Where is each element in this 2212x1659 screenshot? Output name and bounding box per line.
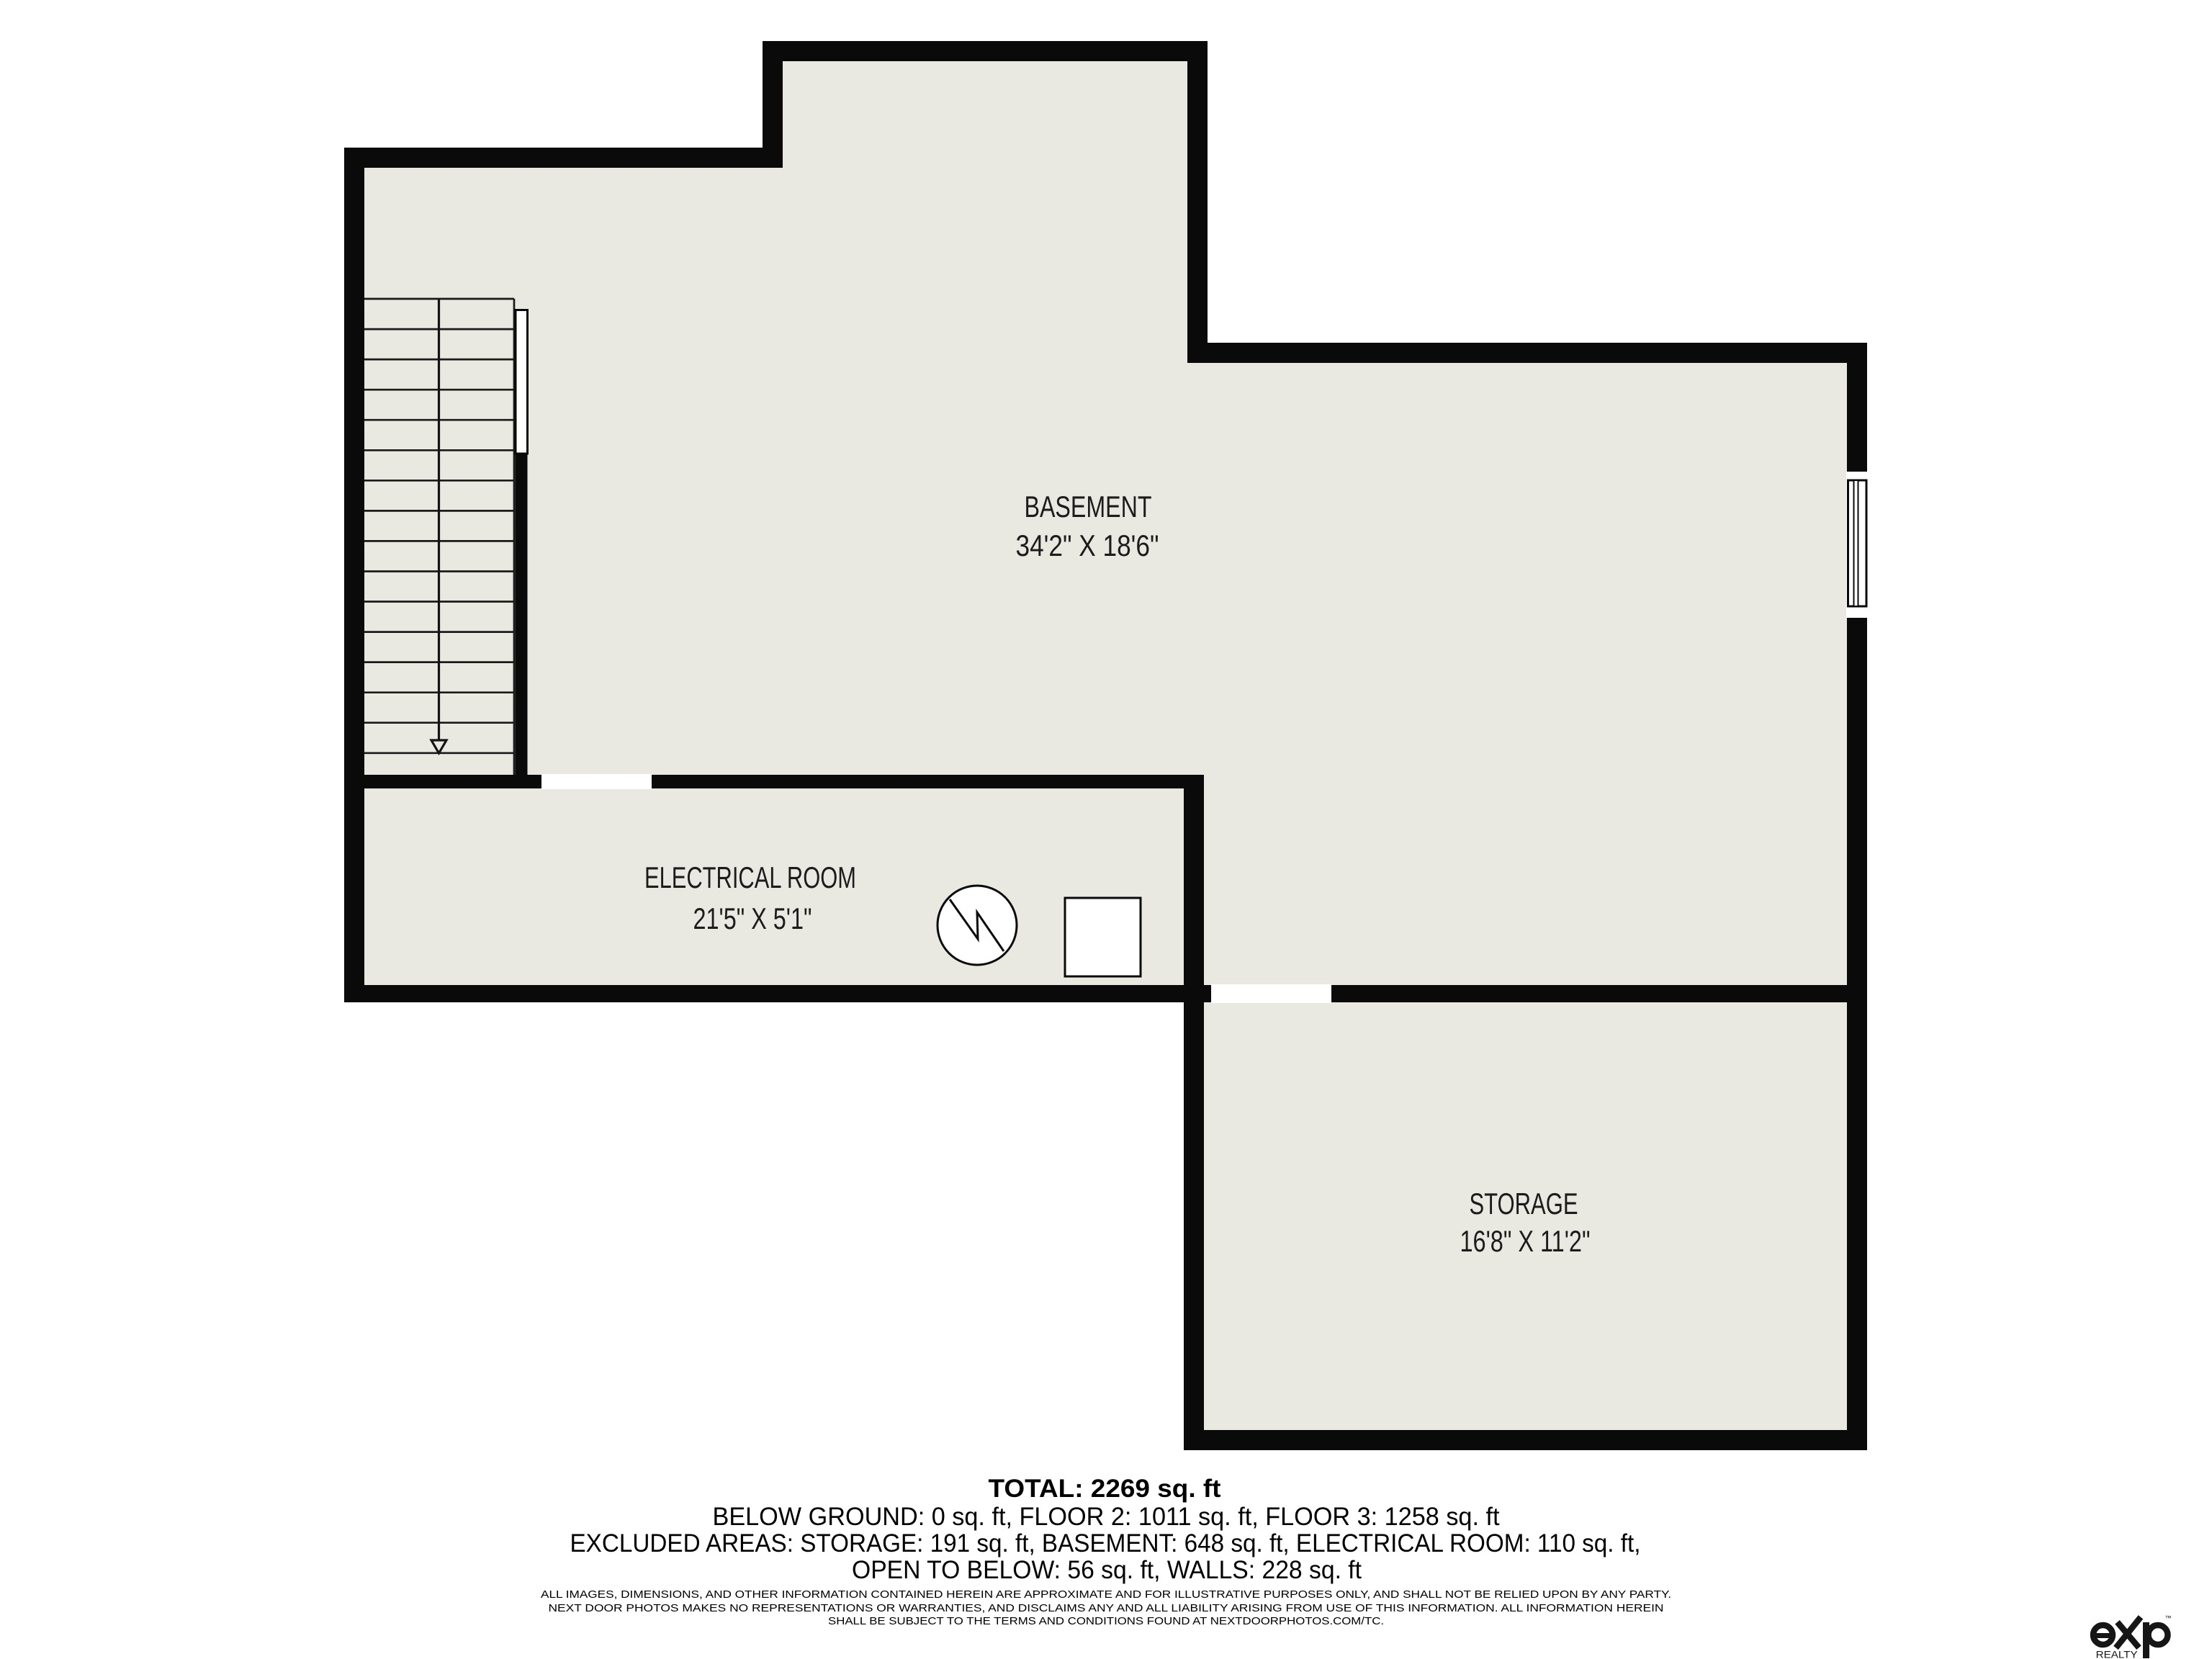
svg-text:EXCLUDED AREAS: STORAGE: 191 s: EXCLUDED AREAS: STORAGE: 191 sq. ft, BAS… [570,1529,1641,1557]
svg-text:SHALL BE SUBJECT TO THE TERMS: SHALL BE SUBJECT TO THE TERMS AND CONDIT… [828,1616,1384,1627]
svg-text:TOTAL: 2269 sq. ft: TOTAL: 2269 sq. ft [989,1474,1221,1503]
svg-text:21'5" X 5'1": 21'5" X 5'1" [693,902,812,935]
svg-text:STORAGE: STORAGE [1470,1187,1578,1220]
svg-text:OPEN TO BELOW: 56 sq. ft, WALL: OPEN TO BELOW: 56 sq. ft, WALLS: 228 sq.… [852,1555,1362,1584]
svg-text:BASEMENT: BASEMENT [1025,490,1152,523]
svg-text:NEXT DOOR PHOTOS MAKES NO REPR: NEXT DOOR PHOTOS MAKES NO REPRESENTATION… [549,1603,1664,1614]
svg-text:ELECTRICAL ROOM: ELECTRICAL ROOM [644,860,856,894]
svg-text:34'2" X 18'6": 34'2" X 18'6" [1016,529,1159,562]
svg-text:16'8" X 11'2": 16'8" X 11'2" [1460,1224,1591,1258]
svg-text:™: ™ [2165,1614,2172,1622]
svg-text:REALTY: REALTY [2096,1649,2139,1659]
svg-text:BELOW GROUND: 0 sq. ft, FLOOR: BELOW GROUND: 0 sq. ft, FLOOR 2: 1011 sq… [713,1502,1500,1531]
svg-text:ALL IMAGES, DIMENSIONS, AND OT: ALL IMAGES, DIMENSIONS, AND OTHER INFORM… [541,1589,1671,1601]
